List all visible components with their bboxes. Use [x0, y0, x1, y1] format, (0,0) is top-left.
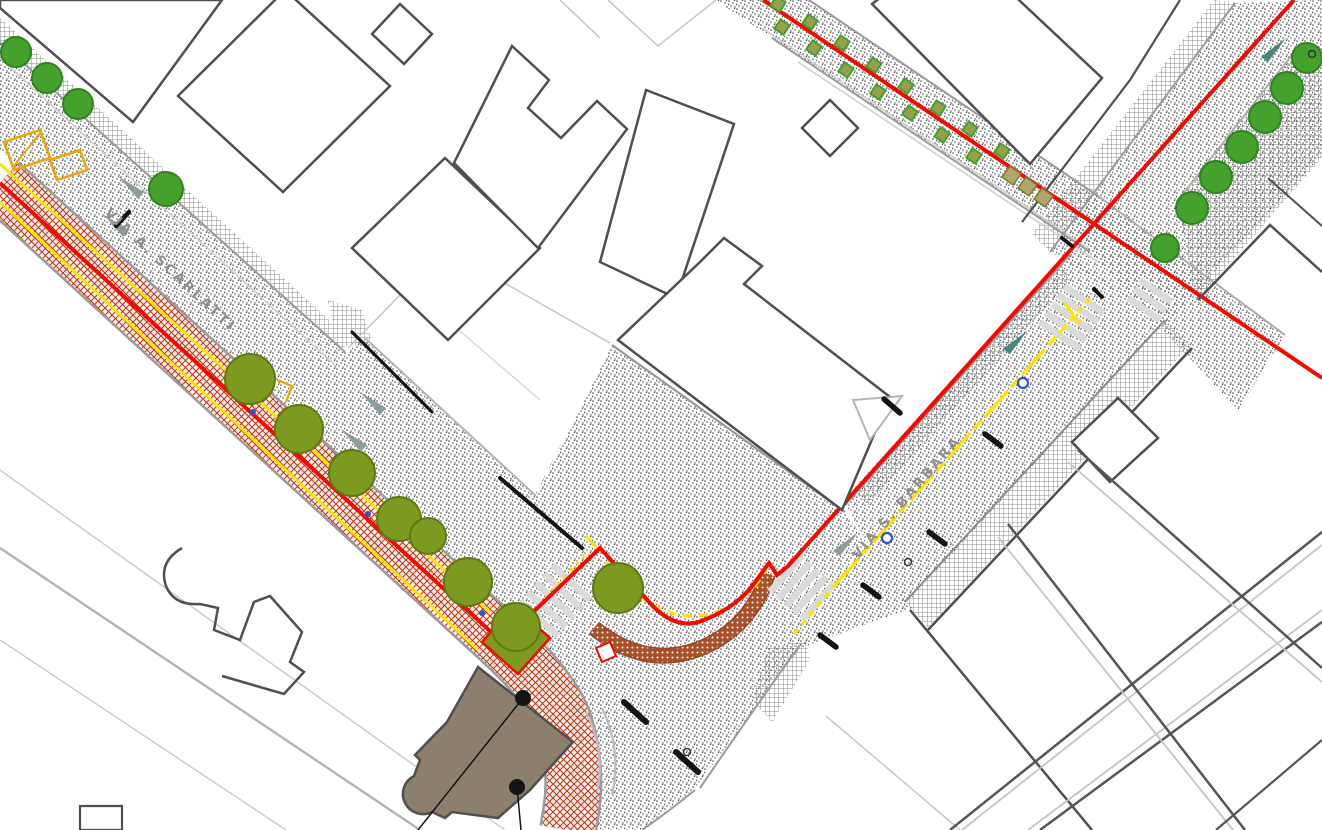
callout-node — [509, 779, 525, 795]
tree — [1, 37, 31, 67]
utility-dot-blue — [365, 511, 371, 517]
street-edge-dark — [1078, 450, 1322, 668]
utility-marker-blue — [1018, 378, 1028, 388]
building — [802, 100, 858, 156]
plan-canvas[interactable]: VIA A. SCARLATTIVIA S. BARBARA — [0, 0, 1322, 830]
tree — [593, 563, 643, 613]
utility-dot-blue — [479, 610, 485, 616]
parcel-line-bottom-street — [826, 716, 960, 830]
tree — [1176, 192, 1208, 224]
tree — [1200, 161, 1232, 193]
urban-plan-view: VIA A. SCARLATTIVIA S. BARBARA — [0, 0, 1322, 830]
building — [372, 4, 432, 64]
tree — [225, 354, 275, 404]
parcel-lines-bottom-left-3 — [0, 640, 286, 830]
parcel-lines-bottom-left-2 — [0, 548, 420, 830]
parcel-line-bottom-right — [1216, 740, 1322, 830]
tree — [1249, 101, 1281, 133]
tree — [1271, 72, 1303, 104]
tree — [149, 172, 183, 206]
building — [178, 0, 390, 192]
tree — [1292, 43, 1322, 73]
tree — [492, 603, 540, 651]
tree — [63, 89, 93, 119]
utility-dot-blue — [250, 409, 256, 415]
tree — [329, 450, 375, 496]
building — [80, 806, 122, 830]
tree — [275, 405, 323, 453]
tree — [410, 518, 446, 554]
callout-node — [515, 690, 531, 706]
tree — [1151, 234, 1179, 262]
tree — [32, 63, 62, 93]
parcel-light-top-center — [560, 0, 716, 46]
street-edge-dark — [1008, 524, 1245, 830]
street-edge-dark — [1040, 622, 1322, 830]
tree — [444, 558, 492, 606]
building-face-bottom-street — [910, 610, 1092, 830]
tree — [1226, 131, 1258, 163]
street-edge-light — [998, 537, 1233, 830]
street-edge-dark — [950, 532, 1322, 830]
